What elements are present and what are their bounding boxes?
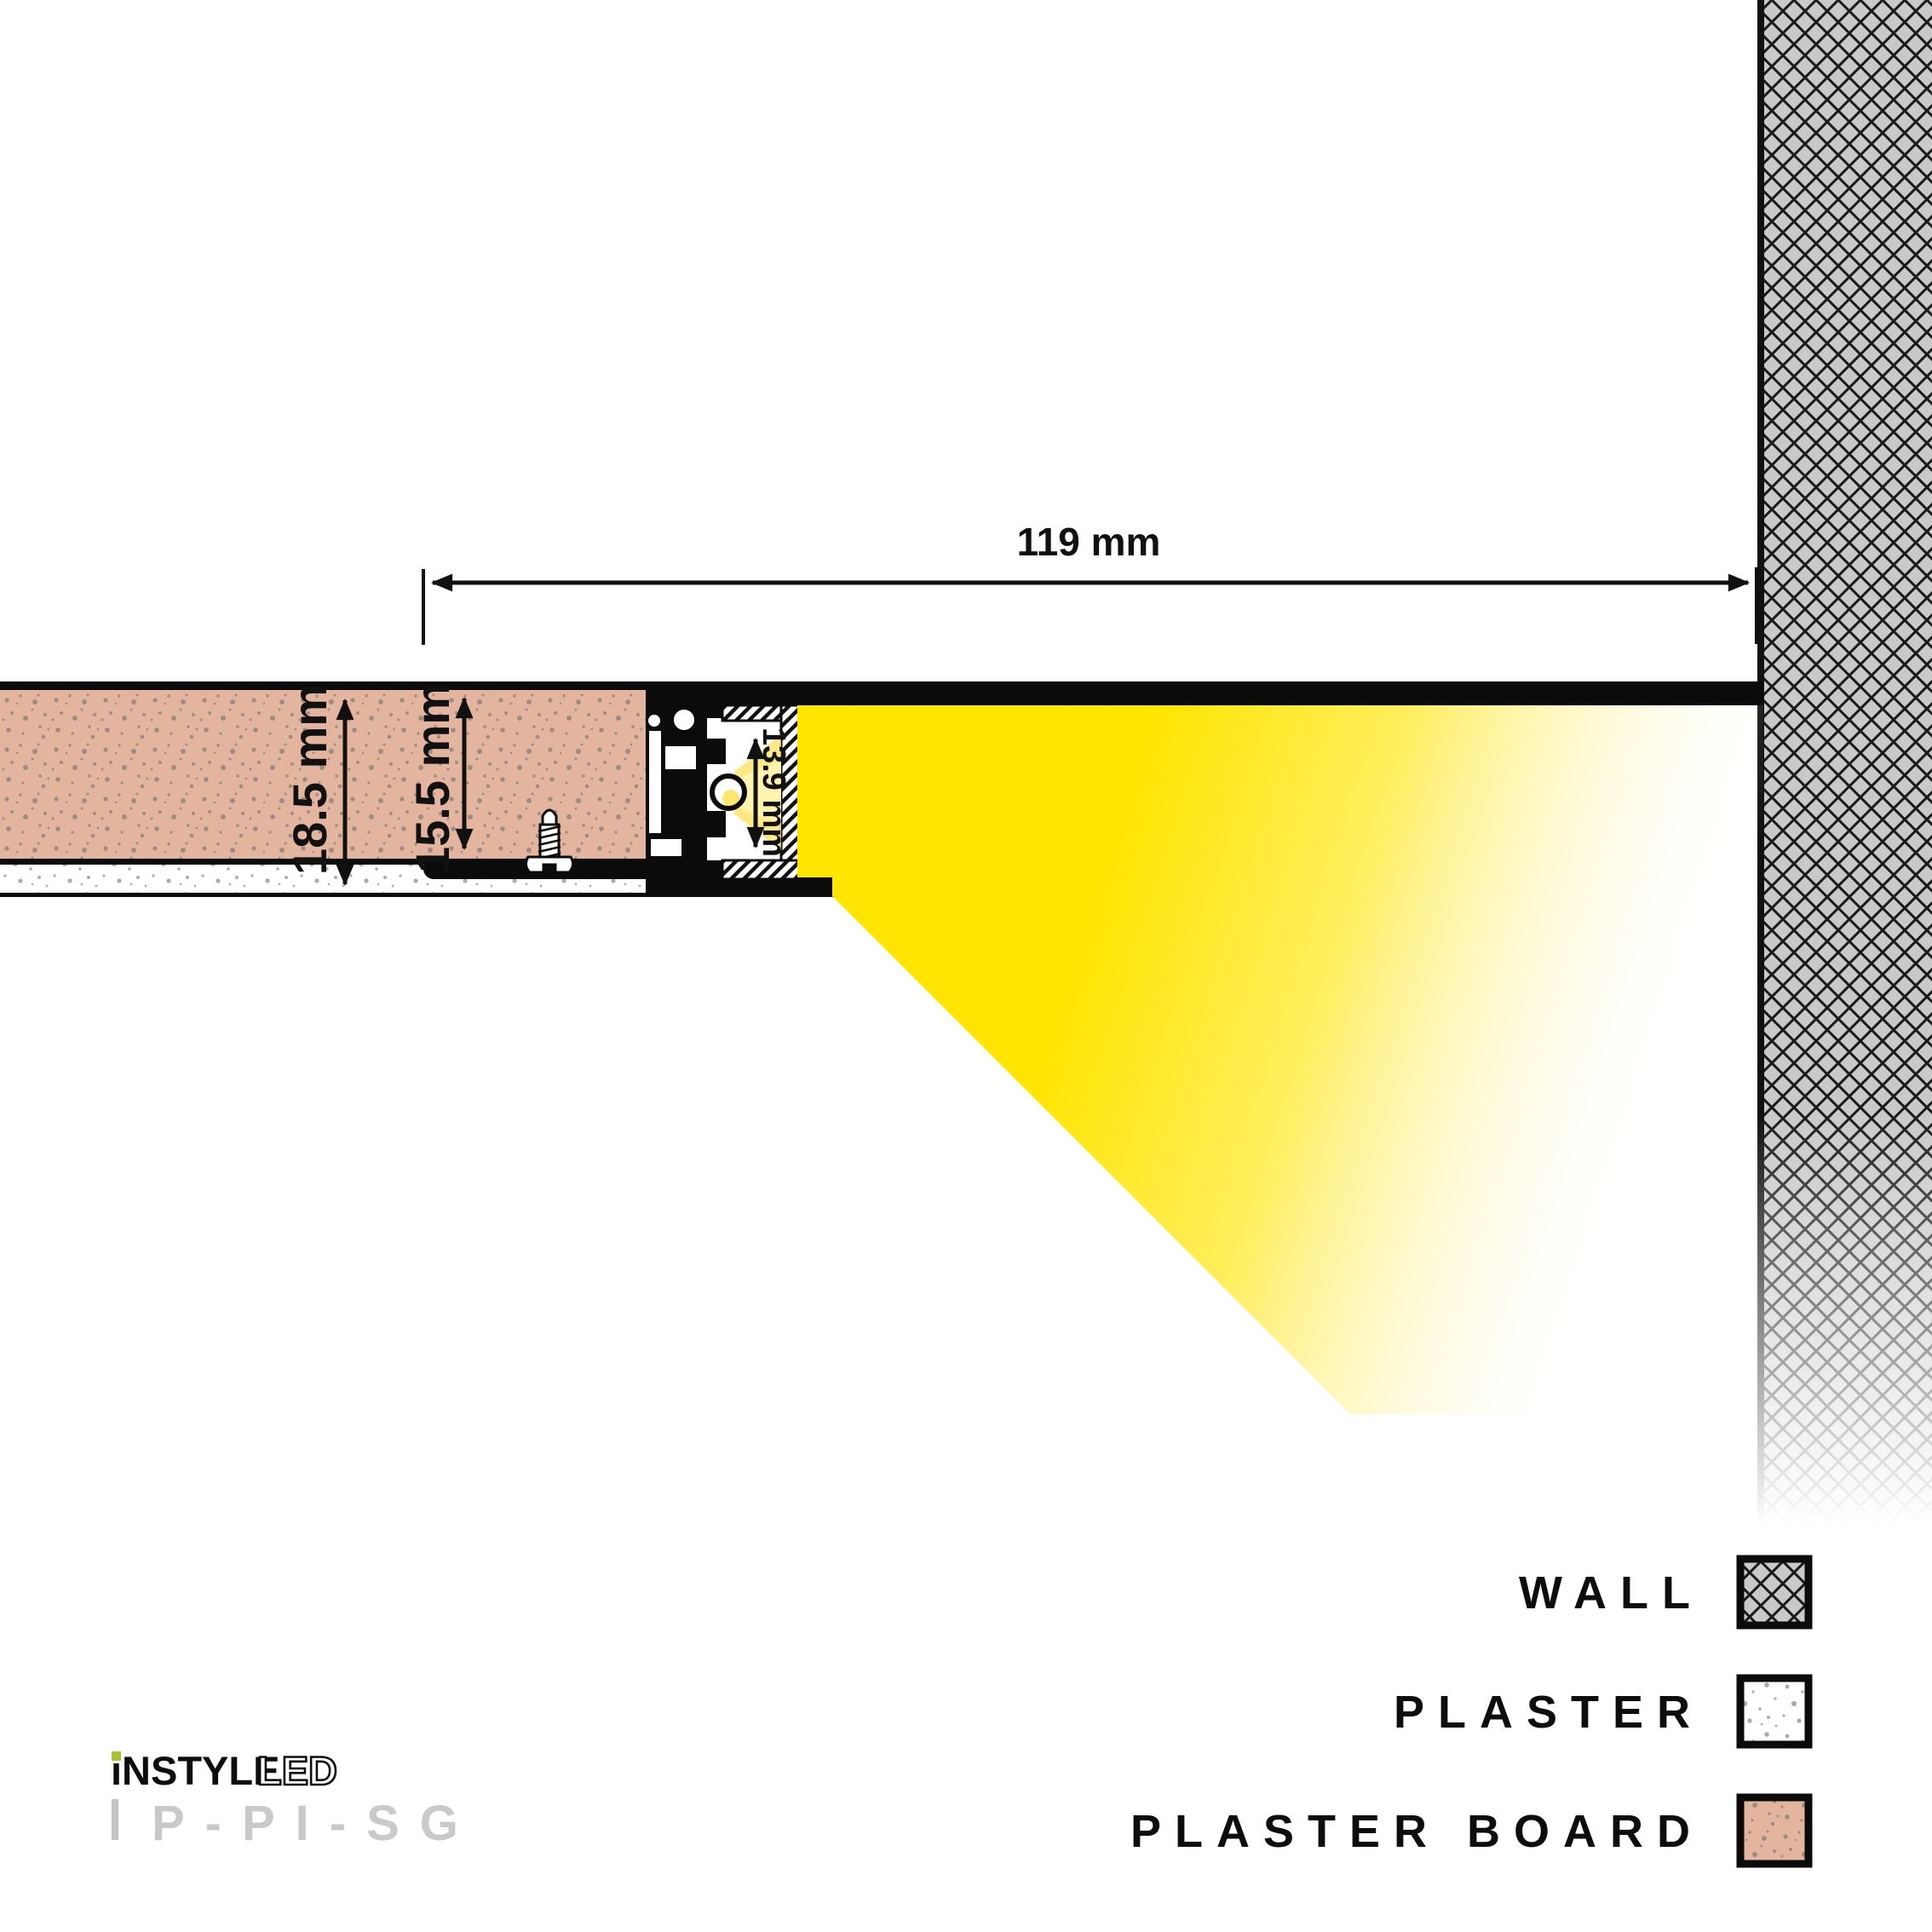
legend-wall-label: WALL <box>1519 1567 1704 1619</box>
legend-plaster-board-label: PLASTER BOARD <box>1130 1806 1704 1857</box>
dimension-channel-height: 13.9 mm <box>756 727 791 857</box>
brand-logo: iNSTYLE LED P-PI-SG <box>111 1748 479 1851</box>
light-beam <box>797 705 1763 1414</box>
dimension-opening-width: 119 mm <box>423 520 1762 645</box>
opening-width-label: 119 mm <box>1017 520 1161 564</box>
dimension-board-depth: 15.5 mm <box>405 682 464 873</box>
datasheet-diagram-page: 119 mm 18.5 mm 15.5 mm 13.9 mm WALL PLAS… <box>0 0 1932 1932</box>
legend-plaster-label: PLASTER <box>1394 1687 1704 1738</box>
wall-section <box>1757 0 1932 1525</box>
legend-wall-swatch <box>1740 1559 1808 1625</box>
board-depth-label: 15.5 mm <box>405 682 459 873</box>
total-depth-label: 18.5 mm <box>283 684 336 875</box>
product-code-bar <box>112 1799 118 1840</box>
legend-item-plaster: PLASTER <box>1394 1678 1808 1745</box>
legend-item-plaster-board: PLASTER BOARD <box>1130 1797 1808 1864</box>
legend: WALL PLASTER PLASTER BOARD <box>1130 1559 1808 1864</box>
brand-accent-dot <box>112 1751 121 1761</box>
dimension-total-depth: 18.5 mm <box>283 684 345 884</box>
brand-name: iNSTYLE <box>111 1748 279 1793</box>
led-icon <box>712 776 745 808</box>
legend-plaster-board-swatch <box>1740 1797 1808 1864</box>
product-code: P-PI-SG <box>152 1796 479 1851</box>
profile-top-wing <box>799 681 1763 705</box>
channel-height-label: 13.9 mm <box>756 727 791 857</box>
legend-plaster-swatch <box>1740 1678 1808 1745</box>
legend-item-wall: WALL <box>1519 1559 1808 1625</box>
profile-section-drawing: 119 mm 18.5 mm 15.5 mm 13.9 mm WALL PLAS… <box>0 0 1932 1932</box>
brand-suffix: LED <box>257 1748 337 1793</box>
